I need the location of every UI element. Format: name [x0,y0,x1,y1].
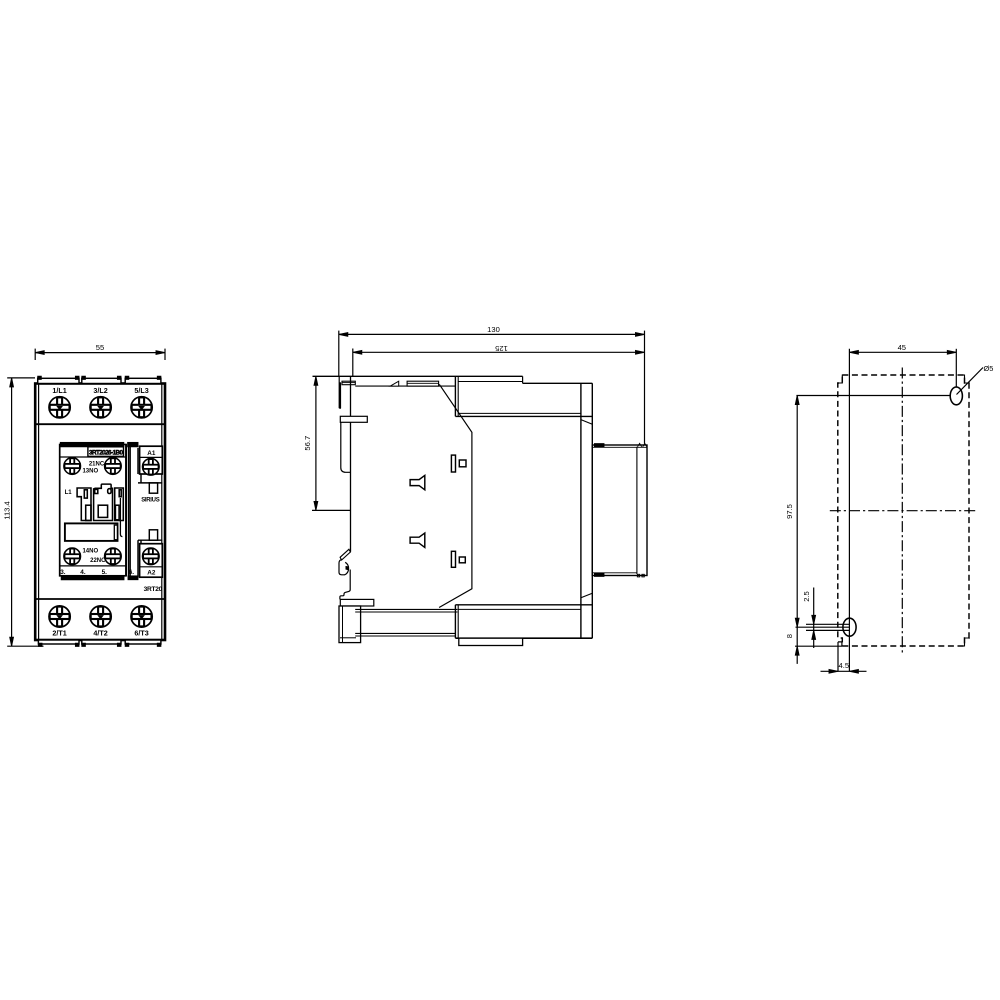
svg-text:6/T3: 6/T3 [134,629,148,638]
svg-text:45: 45 [898,343,906,352]
svg-text:5/L3: 5/L3 [134,386,148,395]
svg-text:130: 130 [487,325,500,334]
svg-text:56.7: 56.7 [303,436,312,451]
svg-text:1/L1: 1/L1 [52,386,66,395]
svg-text:125: 125 [495,344,508,353]
svg-text:8: 8 [785,634,794,638]
svg-text:A1: A1 [147,450,156,457]
svg-text:97.5: 97.5 [785,504,794,519]
svg-text:2/T1: 2/T1 [52,629,66,638]
svg-text:2.5: 2.5 [802,591,811,602]
svg-text:5.: 5. [102,569,108,576]
svg-text:113.4: 113.4 [2,501,11,519]
svg-text:Ø5: Ø5 [984,364,994,373]
svg-text:21NC: 21NC [89,461,105,467]
svg-text:4.: 4. [80,569,86,576]
svg-text:3/L2: 3/L2 [93,386,107,395]
svg-text:A2: A2 [147,570,156,577]
svg-text:4/T2: 4/T2 [93,629,107,638]
svg-text:3RT20: 3RT20 [144,586,163,593]
svg-text:4.5: 4.5 [839,661,850,670]
svg-text:22NC: 22NC [90,558,106,564]
svg-text:3RT2026-1B0: 3RT2026-1B0 [89,450,123,457]
svg-text:6.: 6. [129,569,135,576]
svg-text:L1: L1 [65,490,73,496]
svg-text:3.: 3. [60,569,66,576]
svg-text:13NO: 13NO [82,468,98,474]
svg-text:SIRIUS: SIRIUS [141,498,160,504]
svg-text:14NO: 14NO [82,549,98,555]
svg-text:55: 55 [96,343,104,352]
